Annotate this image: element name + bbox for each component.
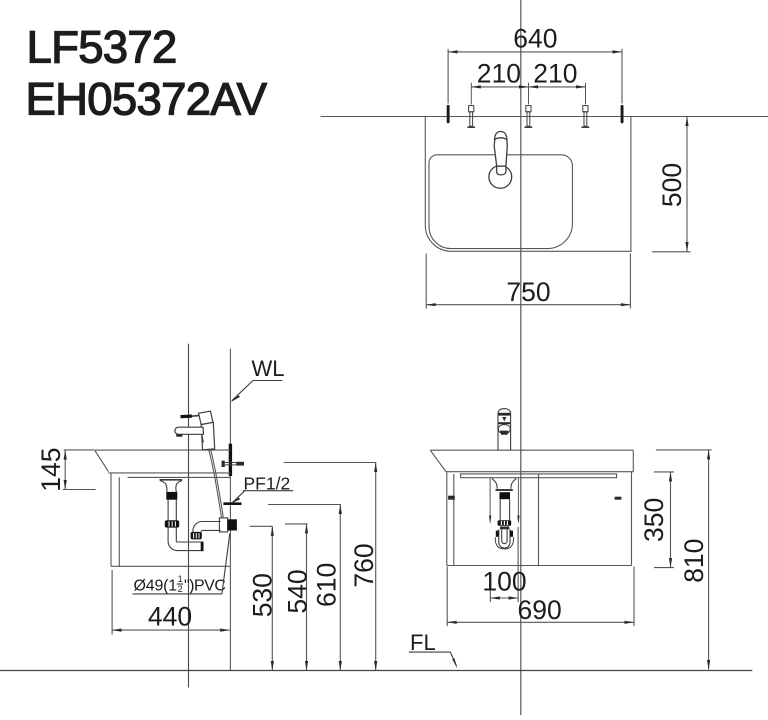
svg-text:690: 690 bbox=[517, 595, 561, 625]
svg-text:610: 610 bbox=[312, 563, 342, 607]
svg-text:760: 760 bbox=[349, 543, 379, 587]
svg-text:750: 750 bbox=[506, 277, 550, 307]
svg-text:540: 540 bbox=[283, 569, 313, 613]
svg-text:145: 145 bbox=[36, 447, 66, 491]
svg-text:LF5372: LF5372 bbox=[27, 22, 177, 73]
svg-text:1: 1 bbox=[178, 574, 183, 584]
svg-text:EH05372AV: EH05372AV bbox=[26, 74, 268, 125]
svg-text:640: 640 bbox=[513, 23, 557, 53]
svg-text:WL: WL bbox=[252, 356, 285, 381]
svg-text:350: 350 bbox=[639, 498, 669, 542]
svg-text:Ø49(1: Ø49(1 bbox=[134, 578, 178, 595]
svg-text:500: 500 bbox=[657, 163, 687, 207]
svg-text:210: 210 bbox=[533, 58, 577, 88]
svg-text:440: 440 bbox=[148, 602, 192, 632]
svg-text:100: 100 bbox=[482, 567, 526, 597]
svg-text:")PVC: ")PVC bbox=[184, 578, 225, 595]
svg-text:210: 210 bbox=[477, 58, 521, 88]
svg-text:2: 2 bbox=[178, 584, 183, 594]
svg-text:FL: FL bbox=[410, 630, 436, 655]
svg-text:810: 810 bbox=[679, 539, 709, 583]
svg-text:530: 530 bbox=[248, 573, 278, 617]
